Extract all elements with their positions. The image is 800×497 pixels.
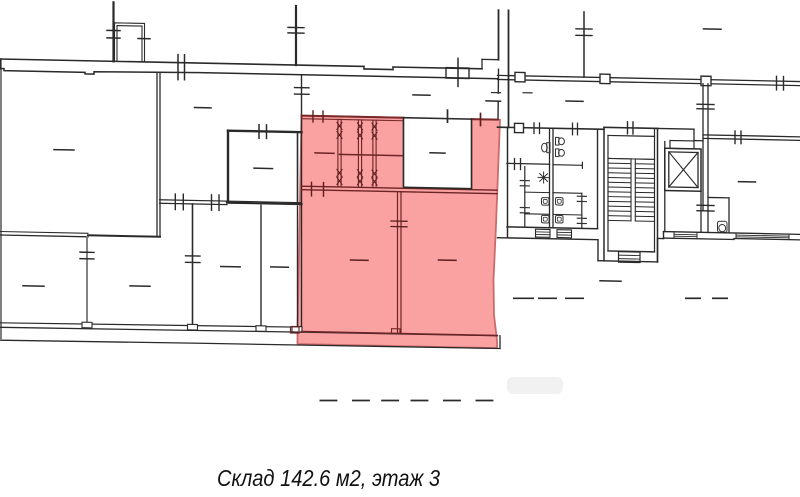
svg-text:Склад 142.6 м2, этаж 3: Склад 142.6 м2, этаж 3	[217, 465, 440, 491]
